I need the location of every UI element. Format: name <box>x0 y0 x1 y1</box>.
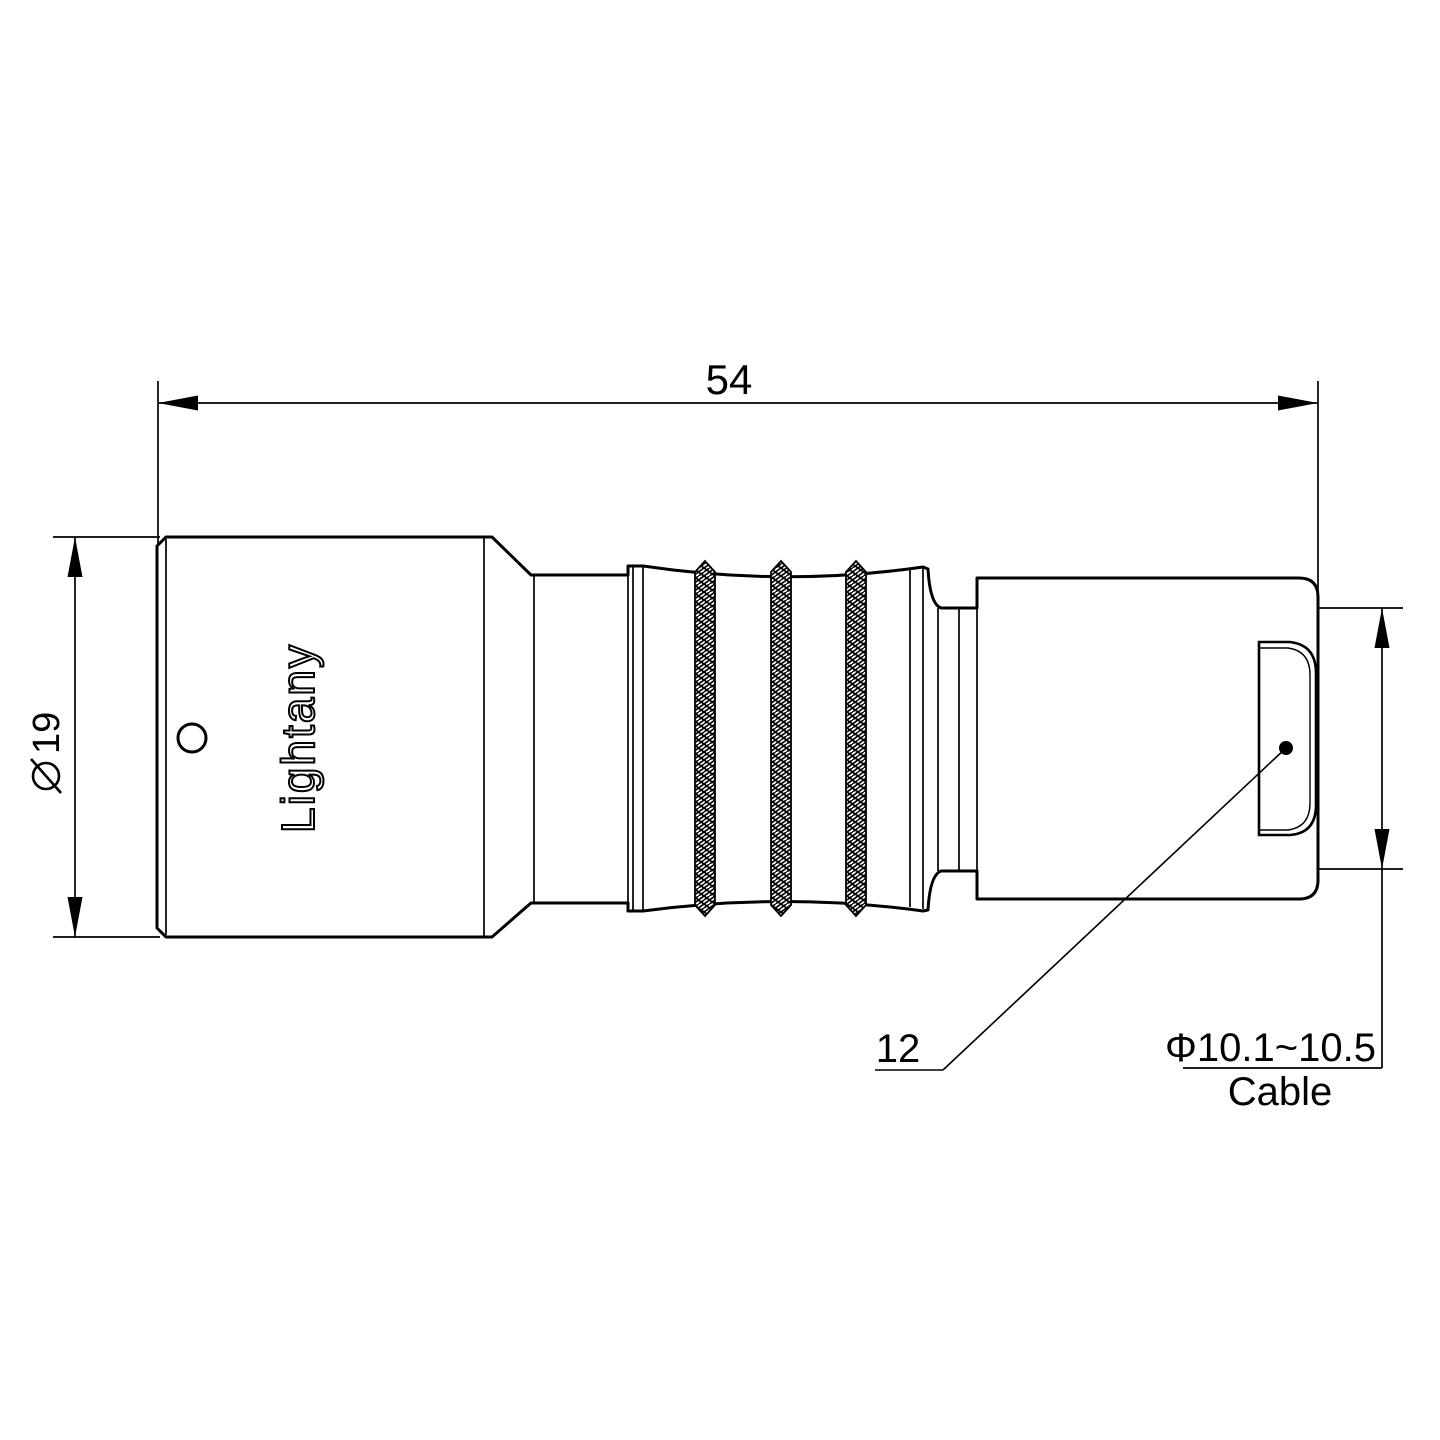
body-hole <box>178 724 206 752</box>
overall-length-value: 54 <box>706 356 753 403</box>
connector-body: Lightany <box>157 537 1318 937</box>
cable-boot <box>1259 642 1316 835</box>
knurl-band <box>695 561 715 916</box>
connector-drawing: Lightany Lightany <box>0 0 1440 1440</box>
arrowhead-left <box>158 396 198 411</box>
arrowhead-down <box>68 897 83 937</box>
arrowhead-down <box>1375 829 1390 869</box>
technical-drawing-page: Lightany Lightany <box>0 0 1440 1440</box>
brand-engraving: Lightany <box>272 643 324 833</box>
arrowhead-right <box>1278 396 1318 411</box>
cable-range-value: Φ10.1~10.5 <box>1165 1026 1376 1070</box>
knurl-band <box>846 561 866 916</box>
connector-silhouette <box>157 537 1318 937</box>
dimension-front-diameter <box>53 537 160 937</box>
front-diameter-label: 19 <box>26 712 68 793</box>
front-diameter-value: 19 <box>26 712 68 754</box>
cable-label: Cable <box>1228 1070 1333 1114</box>
knurl-band <box>771 561 791 916</box>
arrowhead-up <box>1375 608 1390 648</box>
boot-width-value: 12 <box>876 1027 921 1071</box>
diameter-symbol <box>31 759 61 793</box>
arrowhead-up <box>68 537 83 577</box>
